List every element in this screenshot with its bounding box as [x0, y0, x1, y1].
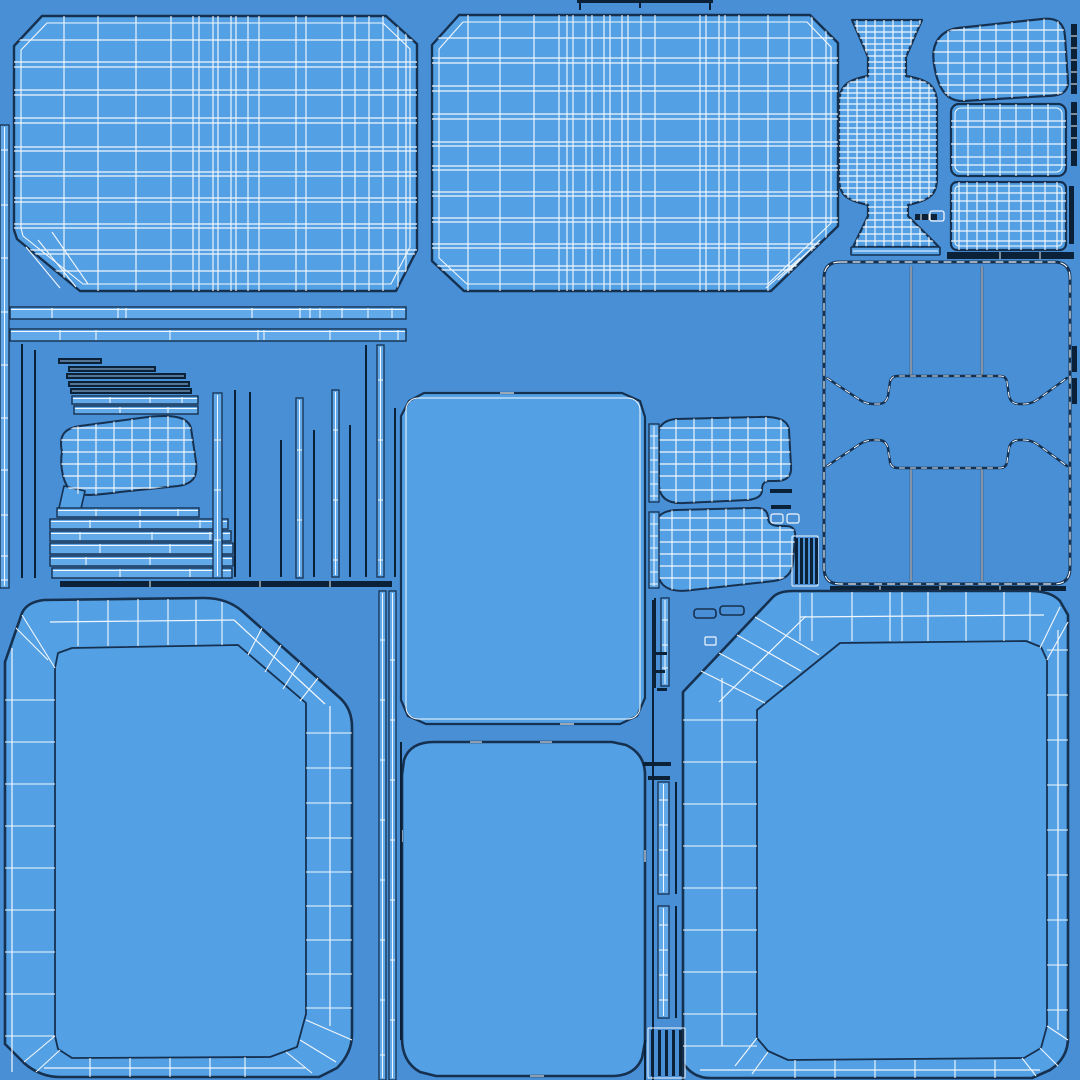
wireframe-rect	[672, 1030, 675, 1076]
uv-island-panel-bottom-right	[683, 591, 1068, 1080]
wireframe-rect	[74, 406, 198, 414]
wireframe-rect	[679, 1030, 682, 1076]
wireframe-rect	[805, 538, 808, 584]
wireframe-rect	[795, 538, 798, 584]
wireframe-shape	[5, 598, 352, 1077]
wireframe-rect	[1069, 186, 1074, 244]
wireframe-rect	[50, 556, 233, 566]
uv-island-panel-bottom-left	[5, 598, 352, 1077]
wireframe-rect	[651, 1030, 654, 1076]
uv-island-blob-top-right	[930, 17, 1070, 102]
wireframe-rect	[800, 538, 803, 584]
wireframe-shape	[402, 742, 645, 1076]
wireframe-rect	[50, 543, 233, 554]
wireframe-rect	[60, 581, 392, 587]
wireframe-rect	[770, 489, 792, 493]
wireframe-rect	[915, 214, 937, 220]
wireframe-rect	[947, 252, 1074, 259]
wireframe-rect	[648, 776, 670, 780]
uv-island-panel-top-center	[432, 15, 838, 291]
wireframe-rect	[577, 0, 713, 3]
wireframe-shape	[933, 19, 1068, 101]
uv-island-panel-bottom-center	[402, 742, 645, 1076]
wireframe-rect	[10, 307, 406, 319]
wireframe-rect	[1072, 346, 1077, 372]
wireframe-rect	[658, 1030, 661, 1076]
wireframe-rect	[10, 329, 406, 341]
wireframe-rect	[1071, 102, 1077, 166]
wireframe-rect	[810, 538, 813, 584]
uv-island-grid-rect-upper-right	[951, 104, 1066, 176]
wireframe-rect	[52, 568, 232, 578]
wireframe-rect	[72, 396, 198, 404]
wireframe-rect	[655, 670, 665, 673]
wireframe-rect	[643, 762, 671, 766]
wireframe-rect	[50, 531, 231, 541]
wireframe-rect	[1072, 378, 1077, 404]
uv-island-panel-top-left	[14, 16, 418, 291]
wireframe-rect	[771, 505, 791, 509]
uv-island-plain-panel-center	[401, 393, 645, 724]
texture-sheet-stage	[0, 0, 1080, 1080]
wireframe-shape	[401, 393, 645, 724]
wireframe-rect	[50, 519, 228, 529]
wireframe-shape	[432, 15, 838, 291]
wireframe-rect	[665, 1030, 668, 1076]
wireframe-rect	[655, 652, 667, 655]
uv-texture-sheet	[0, 0, 1080, 1080]
uv-island-grid-rect-right	[947, 182, 1074, 259]
wireframe-rect	[657, 688, 667, 691]
wireframe-rect	[815, 538, 818, 584]
